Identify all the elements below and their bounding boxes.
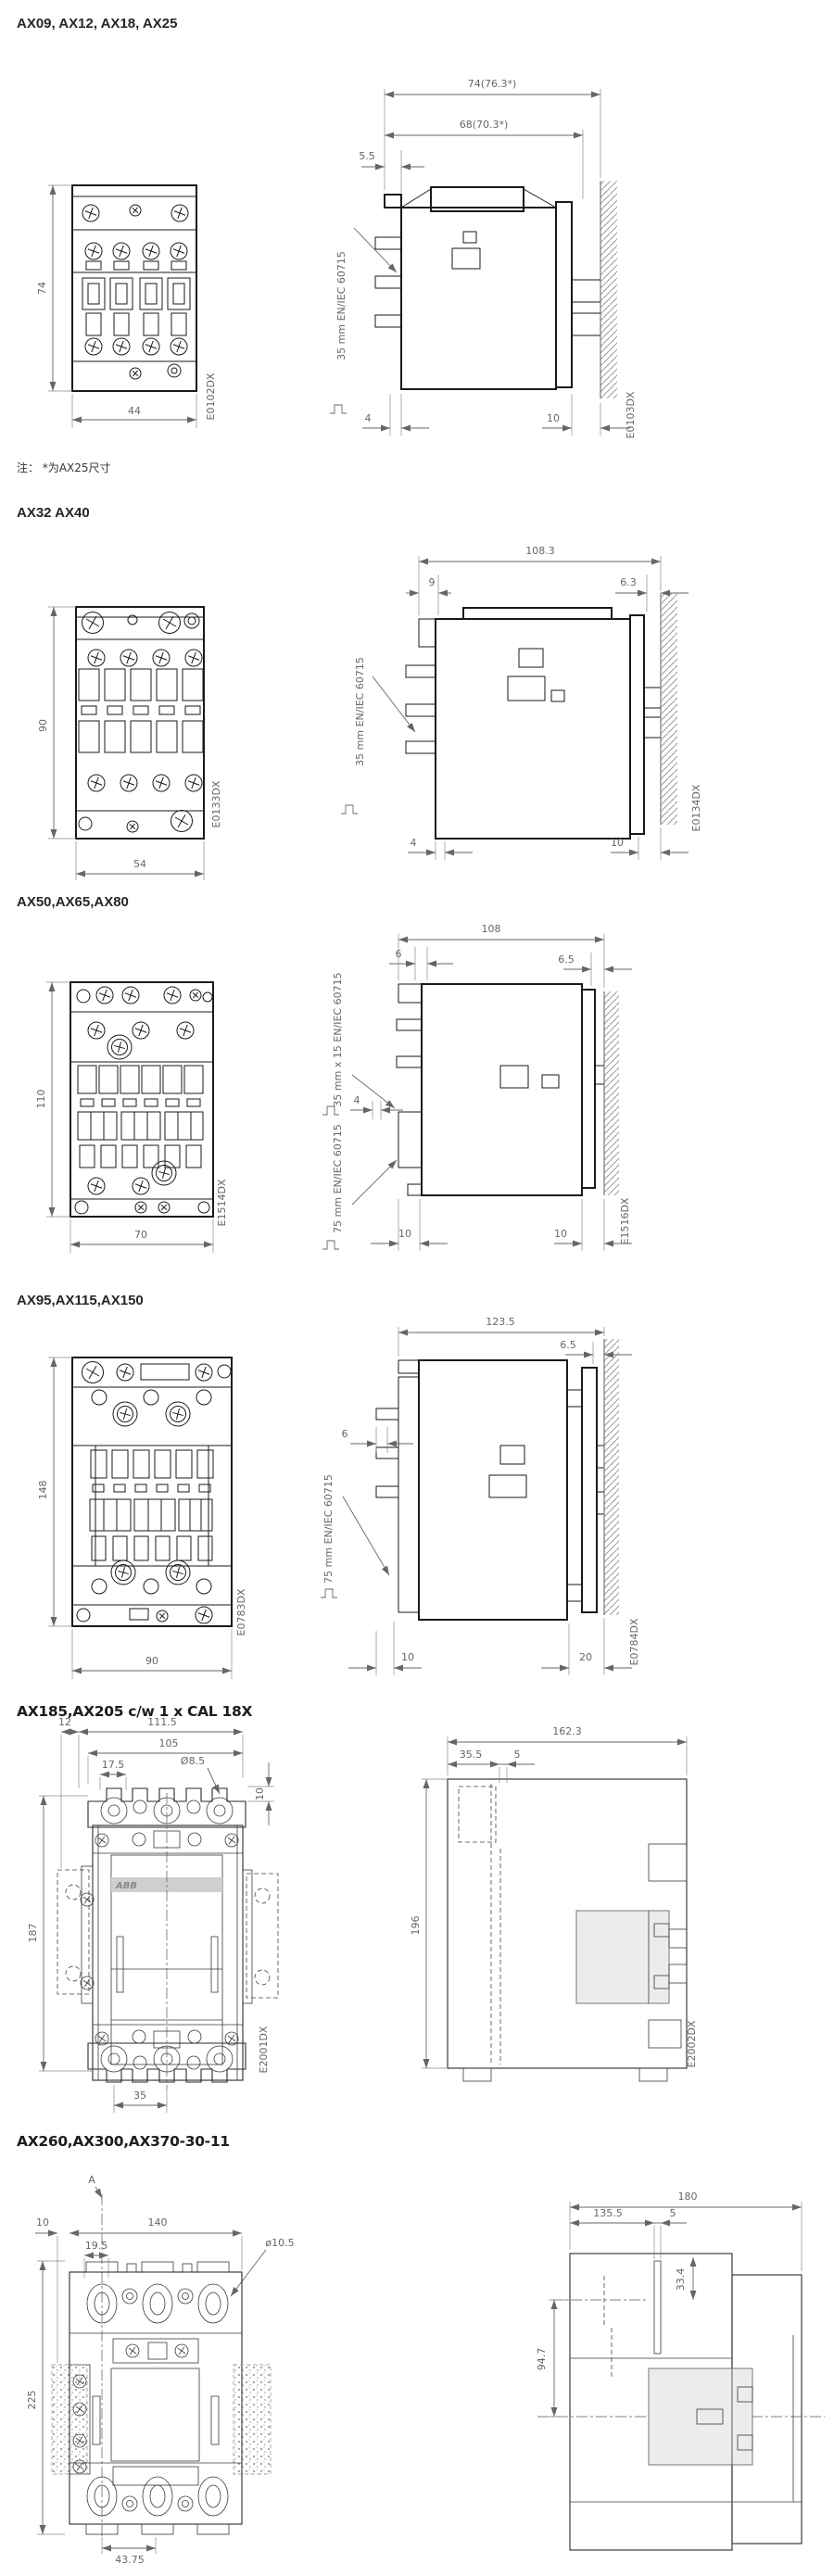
dim-side-total: 180 bbox=[678, 2191, 698, 2203]
dim-bottom-2: 20 bbox=[579, 1651, 592, 1663]
drawing-code: E2002DX bbox=[686, 2020, 698, 2067]
ax09-side-view: 74(76.3*) 68(70.3*) 5.5 35 mm EN/IEC 607… bbox=[330, 78, 637, 438]
section-ax260-ax370: AX260,AX300,AX370-30-11 A 10 140 19.5 ø1… bbox=[17, 2133, 825, 2566]
ax260-front-view: A 10 140 19.5 ø10.5 225 bbox=[26, 2174, 295, 2566]
footnote: 注： *为AX25尺寸 bbox=[17, 461, 111, 474]
dim-111-5: 111.5 bbox=[147, 1716, 177, 1728]
ax95-front-view: 148 90 E0783DX bbox=[37, 1357, 247, 1679]
din-rail-profile-icon bbox=[322, 1241, 339, 1249]
dim-side-height: 196 bbox=[410, 1916, 422, 1936]
ax185-front-view: ABB 12 111.5 105 17.5 Ø8.5 10 bbox=[27, 1716, 278, 2113]
section-title: AX32 AX40 bbox=[17, 505, 90, 521]
section-ax09-ax25: AX09, AX12, AX18, AX25 74 44 E0102DX bbox=[17, 16, 637, 474]
dim-bottom-1: 10 bbox=[398, 1228, 411, 1240]
dim-33-4: 33.4 bbox=[675, 2268, 687, 2292]
dim-side-d2: 6.5 bbox=[558, 953, 575, 966]
dim-bottom-2: 10 bbox=[547, 412, 560, 424]
dim-bottom-1: 4 bbox=[365, 412, 372, 424]
din-rail-label: 35 mm EN/IEC 60715 bbox=[335, 251, 347, 360]
dim-front-width: 44 bbox=[128, 405, 141, 417]
section-title: AX95,AX115,AX150 bbox=[17, 1293, 144, 1308]
dim-bottom-1: 4 bbox=[411, 837, 417, 849]
ax09-front-view: 74 44 E0102DX bbox=[36, 185, 217, 428]
din-rail-profile-icon bbox=[341, 805, 358, 814]
catalog-page: AX09, AX12, AX18, AX25 74 44 E0102DX bbox=[0, 0, 834, 2576]
dim-5: 5 bbox=[670, 2207, 676, 2219]
dim-side-d1: 6 bbox=[342, 1428, 348, 1440]
section-ax185-ax205: AX185,AX205 c/w 1 x CAL 18X ABB bbox=[17, 1703, 698, 2113]
din-rail-label: 35 mm EN/IEC 60715 bbox=[354, 657, 366, 766]
dim-front-height: 187 bbox=[27, 1924, 39, 1943]
dim-side-total: 108.3 bbox=[525, 545, 555, 557]
dim-side-mid: 4 bbox=[354, 1094, 360, 1106]
din-rail-profile-icon bbox=[321, 1589, 337, 1597]
dim-bottom-2: 10 bbox=[611, 837, 624, 849]
section-title: AX260,AX300,AX370-30-11 bbox=[17, 2133, 230, 2150]
dim-front-height: 225 bbox=[26, 2391, 38, 2410]
dim-side-d2: 6.3 bbox=[620, 576, 637, 588]
dim-marker-a: A bbox=[88, 2174, 95, 2186]
drawing-code: E0783DX bbox=[235, 1588, 247, 1635]
dim-135-5: 135.5 bbox=[593, 2207, 623, 2219]
dim-front-width: 90 bbox=[145, 1655, 158, 1667]
drawing-code: E1516DX bbox=[619, 1197, 631, 1244]
dim-140: 140 bbox=[148, 2216, 168, 2229]
dim-10: 10 bbox=[36, 2216, 49, 2229]
dimension-drawings: AX09, AX12, AX18, AX25 74 44 E0102DX bbox=[0, 0, 834, 2576]
dim-5: 5 bbox=[514, 1749, 521, 1761]
dim-35-5: 35.5 bbox=[460, 1749, 483, 1761]
ax32-front-view: 90 54 E0133DX bbox=[37, 607, 222, 880]
dim-bottom-1: 10 bbox=[401, 1651, 414, 1663]
dim-43-75: 43.75 bbox=[115, 2554, 145, 2566]
dim-94-7: 94.7 bbox=[536, 2348, 548, 2371]
dim-10-vert: 10 bbox=[254, 1787, 266, 1800]
dim-hole-dia: Ø8.5 bbox=[181, 1755, 205, 1767]
dim-35: 35 bbox=[133, 2090, 146, 2102]
section-ax32-ax40: AX32 AX40 90 54 E0133DX bbox=[17, 505, 702, 880]
section-title: AX09, AX12, AX18, AX25 bbox=[17, 16, 177, 32]
dim-105: 105 bbox=[159, 1737, 179, 1749]
dim-12: 12 bbox=[58, 1716, 71, 1728]
dim-front-height: 74 bbox=[36, 282, 48, 295]
dim-side-inner: 68(70.3*) bbox=[460, 119, 509, 131]
section-ax95-ax150: AX95,AX115,AX150 148 90 E0783DX bbox=[17, 1293, 640, 1679]
dim-17-5: 17.5 bbox=[102, 1759, 125, 1771]
ax50-front-view: 110 70 E1514DX bbox=[35, 982, 228, 1253]
ax50-side-view: 108 6 6.5 35 mm x 15 EN/IEC 60715 4 75 m… bbox=[322, 923, 632, 1251]
drawing-code: E1514DX bbox=[216, 1179, 228, 1226]
dim-side-total: 123.5 bbox=[486, 1316, 515, 1328]
section-title: AX50,AX65,AX80 bbox=[17, 894, 129, 910]
dim-front-width: 70 bbox=[134, 1229, 147, 1241]
section-ax50-ax80: AX50,AX65,AX80 110 70 E1514DX bbox=[17, 894, 632, 1253]
dim-side-total: 162.3 bbox=[552, 1725, 582, 1737]
din-rail-top-label: 35 mm x 15 EN/IEC 60715 bbox=[332, 972, 344, 1106]
drawing-code: E0784DX bbox=[628, 1618, 640, 1665]
dim-front-width: 54 bbox=[133, 858, 146, 870]
dim-19-5: 19.5 bbox=[85, 2240, 108, 2252]
ax95-side-view: 123.5 6.5 6 75 mm EN/IEC 60715 10 20 E07… bbox=[321, 1316, 640, 1675]
drawing-code: E0103DX bbox=[625, 391, 637, 438]
dim-bottom-2: 10 bbox=[554, 1228, 567, 1240]
drawing-code: E0133DX bbox=[210, 780, 222, 827]
din-rail-bottom-label: 75 mm EN/IEC 60715 bbox=[332, 1124, 344, 1233]
ax260-side-view: 180 135.5 5 33.4 94.7 bbox=[536, 2191, 825, 2550]
brand-logo: ABB bbox=[115, 1881, 137, 1891]
dim-side-total: 108 bbox=[482, 923, 501, 935]
din-rail-label: 75 mm EN/IEC 60715 bbox=[322, 1474, 335, 1584]
din-rail-profile-icon bbox=[330, 405, 347, 413]
drawing-code: E0134DX bbox=[690, 784, 702, 831]
dim-side-total: 74(76.3*) bbox=[468, 78, 517, 90]
dim-side-d1: 6 bbox=[396, 948, 402, 960]
drawing-code: E2001DX bbox=[258, 2026, 270, 2073]
drawing-code: E0102DX bbox=[205, 373, 217, 420]
dim-side-d2: 6.5 bbox=[560, 1339, 576, 1351]
dim-front-height: 148 bbox=[37, 1481, 49, 1500]
dim-side-top: 5.5 bbox=[359, 150, 375, 162]
section-title: AX185,AX205 c/w 1 x CAL 18X bbox=[17, 1703, 252, 1720]
ax185-side-view: 162.3 35.5 5 196 E2002DX bbox=[410, 1725, 698, 2081]
ax32-side-view: 108.3 9 6.3 35 mm EN/IEC 60715 4 10 E013… bbox=[341, 545, 702, 860]
dim-front-height: 90 bbox=[37, 719, 49, 732]
dim-side-d1: 9 bbox=[429, 576, 436, 588]
dim-front-height: 110 bbox=[35, 1090, 47, 1109]
dim-hole-dia: ø10.5 bbox=[265, 2237, 294, 2249]
